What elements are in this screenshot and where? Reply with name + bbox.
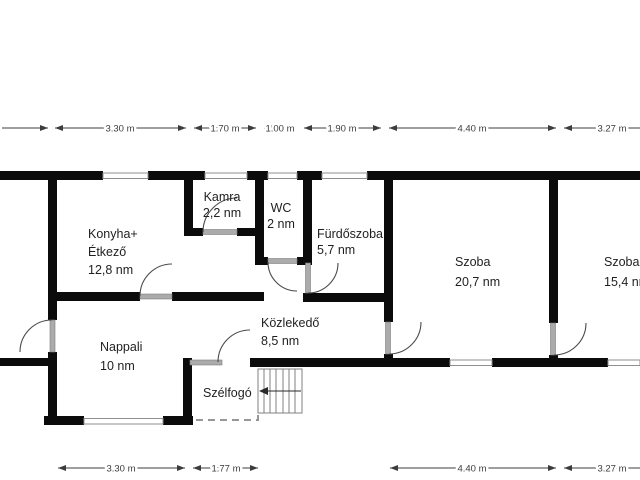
room-name: Fürdőszoba — [317, 227, 383, 241]
door-furdoszoba-leaf — [306, 263, 311, 293]
room-name: WC — [271, 201, 292, 215]
floorplan-page: 3.30 m 1.70 m 1.00 m 1.90 m 4.40 m 3.27 … — [0, 0, 640, 480]
dim-label: 4.40 m — [457, 464, 486, 475]
dim-label: 3.30 m — [105, 124, 134, 135]
window — [608, 360, 640, 366]
floorplan-svg: 3.30 m 1.70 m 1.00 m 1.90 m 4.40 m 3.27 … — [0, 0, 640, 480]
room-name: Közlekedő — [261, 316, 319, 330]
stairs — [258, 369, 302, 413]
dim-label: 3.30 m — [106, 464, 135, 475]
room-name: Szoba — [604, 255, 639, 269]
door-kamra-leaf — [203, 230, 237, 235]
dim-label: 1.77 m — [211, 464, 240, 475]
window — [450, 360, 492, 366]
room-name: Kamra — [204, 190, 241, 204]
window — [322, 173, 367, 179]
window — [268, 173, 297, 179]
window — [103, 173, 148, 179]
room-name: Nappali — [100, 340, 142, 354]
door-szoba-nagy-leaf — [386, 322, 391, 354]
dim-label: 3.27 m — [597, 464, 626, 475]
room-area: 8,5 nm — [261, 334, 299, 348]
room-name: Konyha+ — [88, 227, 138, 241]
room-area: 2 nm — [267, 217, 295, 231]
window — [84, 419, 163, 425]
room-name: Szélfogó — [203, 386, 252, 400]
door-szoba-kis-leaf — [551, 323, 556, 355]
room-area: 2,2 nm — [203, 206, 241, 220]
door-konyha-leaf — [140, 294, 172, 299]
dim-label: 1.00 m — [265, 124, 294, 135]
window — [205, 173, 247, 179]
door-wc-leaf — [268, 259, 297, 264]
room-area: 10 nm — [100, 359, 135, 373]
room-label-szelfogo: Szélfogó — [203, 386, 252, 400]
dim-label: 1.70 m — [210, 124, 239, 135]
room-area: 12,8 nm — [88, 263, 133, 277]
dim-label: 1.90 m — [327, 124, 356, 135]
room-area: 20,7 nm — [455, 275, 500, 289]
door-left-room-leaf — [50, 320, 55, 352]
room-area: 15,4 nm — [604, 275, 640, 289]
dim-label: 4.40 m — [457, 124, 486, 135]
door-szelfogo-leaf — [190, 360, 222, 365]
room-name: Étkező — [88, 244, 126, 259]
dim-label: 3.27 m — [597, 124, 626, 135]
room-name: Szoba — [455, 255, 490, 269]
room-area: 5,7 nm — [317, 243, 355, 257]
